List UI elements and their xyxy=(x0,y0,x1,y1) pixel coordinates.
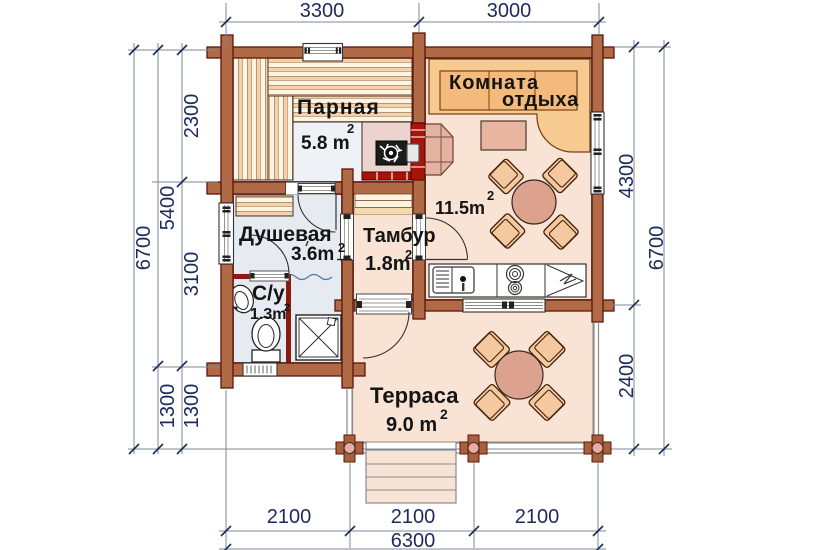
svg-text:Парная: Парная xyxy=(297,96,380,119)
svg-text:Тамбур: Тамбур xyxy=(363,225,436,247)
svg-text:6700: 6700 xyxy=(646,226,668,271)
svg-text:1300: 1300 xyxy=(157,384,179,429)
svg-text:1300: 1300 xyxy=(181,384,203,429)
svg-text:2100: 2100 xyxy=(267,506,312,528)
svg-text:2: 2 xyxy=(338,240,345,255)
svg-text:3100: 3100 xyxy=(181,252,203,297)
svg-text:2100: 2100 xyxy=(391,506,436,528)
svg-text:6700: 6700 xyxy=(133,226,155,271)
svg-text:1.8m: 1.8m xyxy=(365,253,411,275)
svg-text:2100: 2100 xyxy=(515,506,560,528)
svg-text:2: 2 xyxy=(487,188,494,203)
svg-text:3300: 3300 xyxy=(300,0,345,22)
svg-text:С/у: С/у xyxy=(252,282,285,305)
svg-text:1.3m: 1.3m xyxy=(250,306,286,323)
svg-text:11.5m: 11.5m xyxy=(435,198,485,218)
svg-text:2: 2 xyxy=(347,121,354,136)
svg-text:2300: 2300 xyxy=(181,94,203,139)
svg-text:6300: 6300 xyxy=(391,530,436,550)
svg-text:2: 2 xyxy=(405,247,412,262)
svg-text:5400: 5400 xyxy=(157,186,179,231)
svg-text:отдыха: отдыха xyxy=(502,89,579,111)
svg-text:Терраса: Терраса xyxy=(370,383,459,408)
svg-text:3000: 3000 xyxy=(487,0,532,22)
svg-text:3.6m: 3.6m xyxy=(291,244,334,265)
svg-text:2: 2 xyxy=(284,302,290,314)
svg-text:9.0 m: 9.0 m xyxy=(386,414,437,436)
svg-text:2: 2 xyxy=(440,406,448,422)
svg-text:5.8 m: 5.8 m xyxy=(301,133,350,154)
svg-text:2400: 2400 xyxy=(616,354,638,399)
svg-text:4300: 4300 xyxy=(616,154,638,199)
svg-text:Душевая: Душевая xyxy=(239,223,332,246)
